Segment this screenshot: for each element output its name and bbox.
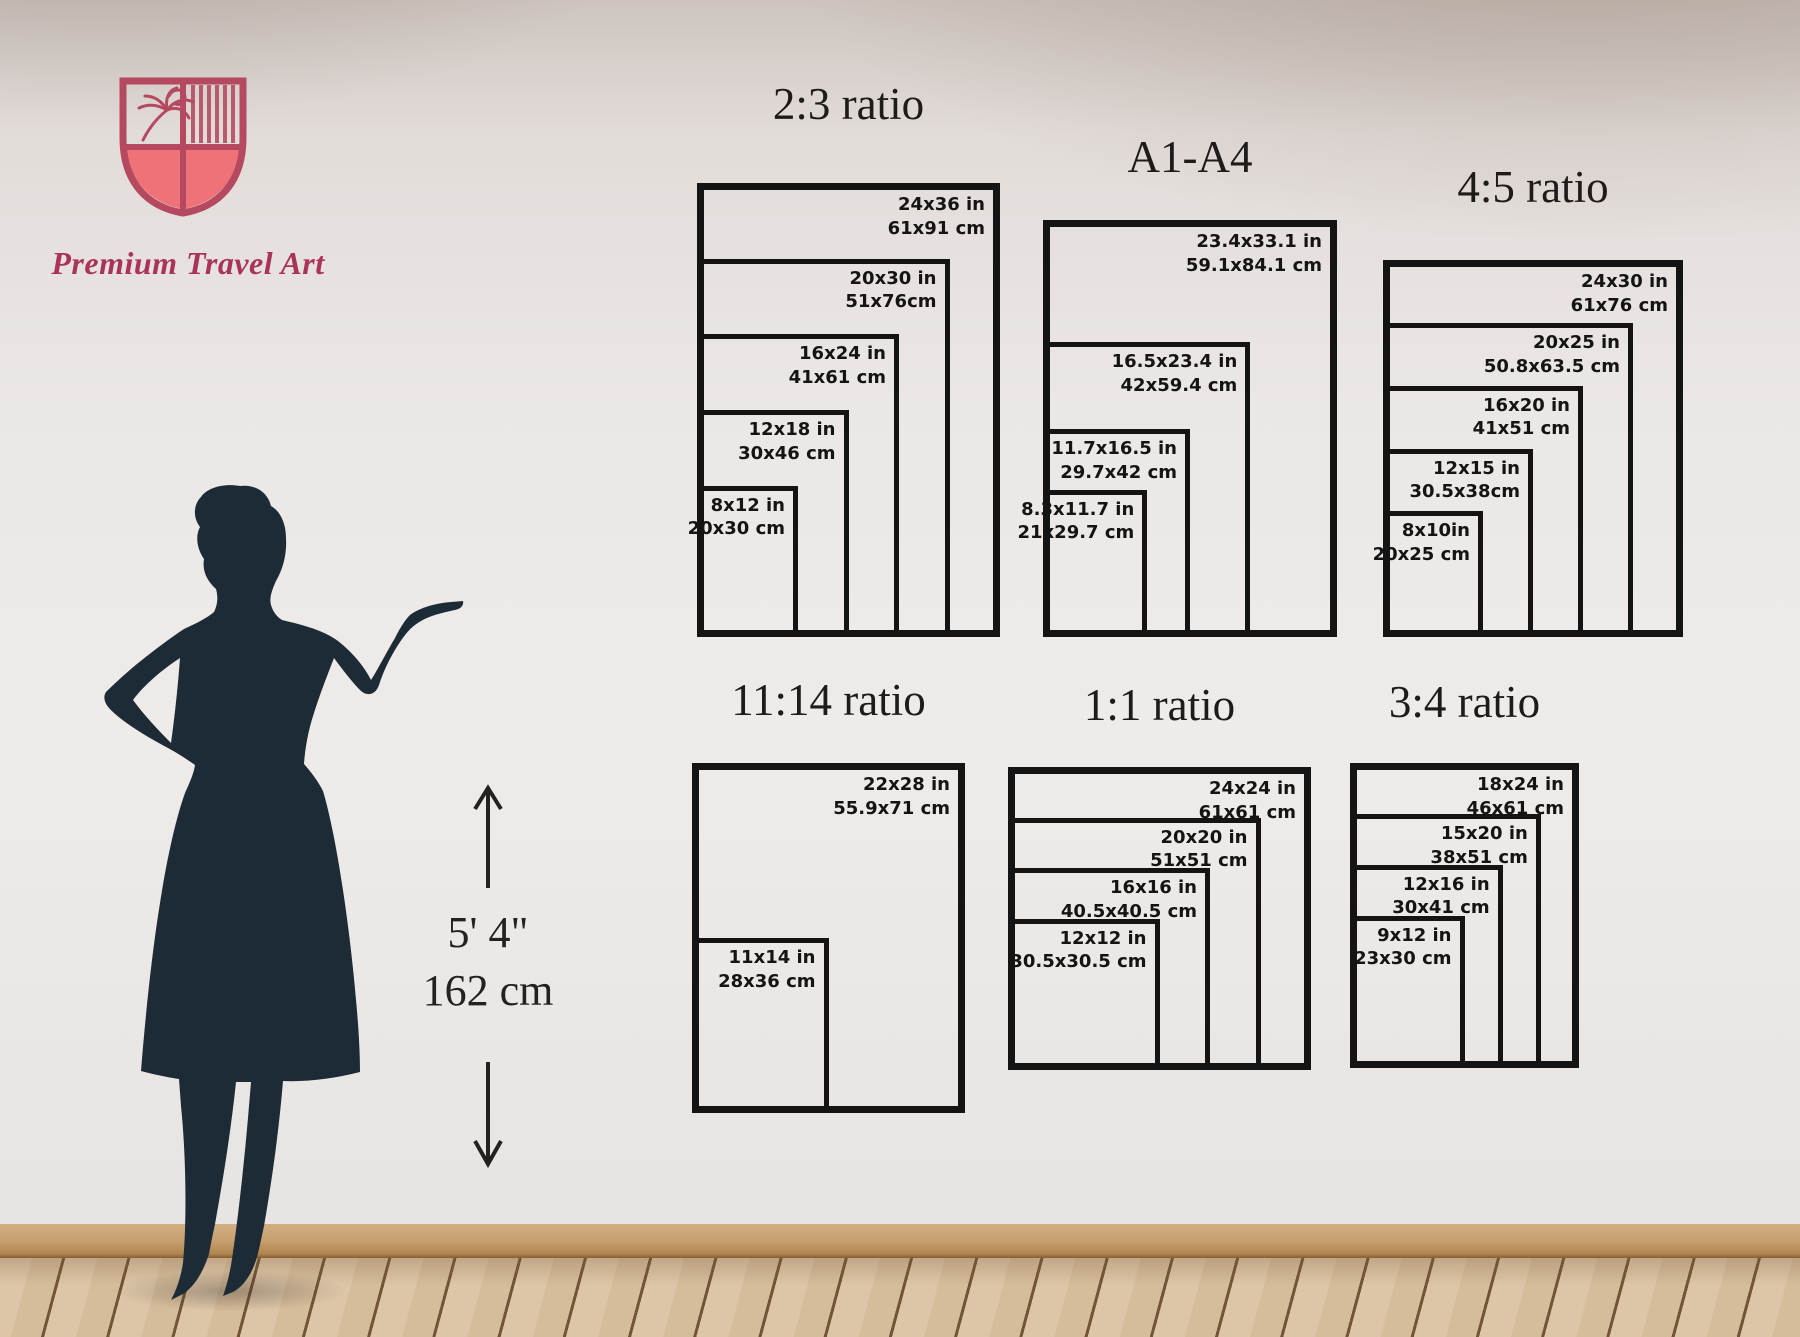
size-label: 8.3x11.7 in21x29.7 cm xyxy=(1018,498,1135,546)
size-chart-1-1: 24x24 in61x61 cm20x20 in51x51 cm16x16 in… xyxy=(1008,767,1311,1070)
size-label: 23.4x33.1 in59.1x84.1 cm xyxy=(1186,230,1322,278)
size-label: 24x36 in61x91 cm xyxy=(888,193,985,241)
woman-silhouette xyxy=(60,470,480,1310)
chart-title-2-3: 2:3 ratio xyxy=(697,80,1000,130)
size-rect-11x14in: 11x14 in28x36 cm xyxy=(692,938,829,1113)
size-chart-2-3: 24x36 in61x91 cm20x30 in51x76cm16x24 in4… xyxy=(697,183,1000,637)
size-label: 9x12 in23x30 cm xyxy=(1354,924,1451,972)
size-label: 22x28 in55.9x71 cm xyxy=(833,773,950,821)
size-label: 12x18 in30x46 cm xyxy=(738,418,835,466)
size-label: 11x14 in28x36 cm xyxy=(718,946,815,994)
chart-title-a1-a4: A1-A4 xyxy=(1043,133,1337,183)
size-label: 16x24 in41x61 cm xyxy=(789,342,886,390)
brand-name: Premium Travel Art xyxy=(30,244,346,282)
up-arrow-icon xyxy=(475,788,501,888)
chart-title-1-1: 1:1 ratio xyxy=(1008,681,1311,731)
chart-title-4-5: 4:5 ratio xyxy=(1383,163,1683,213)
size-rect-12x12in: 12x12 in30.5x30.5 cm xyxy=(1008,919,1160,1071)
size-label: 12x15 in30.5x38cm xyxy=(1410,457,1521,505)
size-label: 15x20 in38x51 cm xyxy=(1430,822,1527,870)
size-label: 11.7x16.5 in29.7x42 cm xyxy=(1051,437,1177,485)
size-rect-9x12in: 9x12 in23x30 cm xyxy=(1350,916,1465,1069)
size-label: 8x12 in20x30 cm xyxy=(688,494,785,542)
size-label: 20x30 in51x76cm xyxy=(845,267,936,315)
stripes-quadrant xyxy=(193,85,233,143)
size-chart-3-4: 18x24 in46x61 cm15x20 in38x51 cm12x16 in… xyxy=(1350,763,1579,1068)
shield-palm-logo-icon xyxy=(113,76,253,218)
size-label: 20x25 in50.8x63.5 cm xyxy=(1484,331,1620,379)
size-rect-8x10in: 8x10in20x25 cm xyxy=(1383,511,1483,637)
size-chart-11-14: 22x28 in55.9x71 cm11x14 in28x36 cm xyxy=(692,763,965,1113)
size-label: 8x10in20x25 cm xyxy=(1373,519,1470,567)
chart-title-11-14: 11:14 ratio xyxy=(692,676,965,726)
size-guide-scene: Premium Travel Art 5' 4" 162 cm 2:3 rati… xyxy=(0,0,1800,1337)
size-label: 12x12 in30.5x30.5 cm xyxy=(1010,927,1146,975)
down-arrow-icon xyxy=(475,1062,501,1164)
size-rect-8x12in: 8x12 in20x30 cm xyxy=(697,486,798,637)
size-label: 20x20 in51x51 cm xyxy=(1150,826,1247,874)
size-label: 16.5x23.4 in42x59.4 cm xyxy=(1112,350,1238,398)
size-chart-a1-a4: 23.4x33.1 in59.1x84.1 cm16.5x23.4 in42x5… xyxy=(1043,220,1337,637)
size-label: 24x30 in61x76 cm xyxy=(1571,270,1668,318)
height-imperial-label: 5' 4" xyxy=(400,908,576,959)
size-label: 16x16 in40.5x40.5 cm xyxy=(1061,876,1197,924)
size-label: 12x16 in30x41 cm xyxy=(1392,873,1489,921)
size-label: 16x20 in41x51 cm xyxy=(1473,394,1570,442)
chart-title-3-4: 3:4 ratio xyxy=(1350,678,1579,728)
size-rect-8.3x11.7in: 8.3x11.7 in21x29.7 cm xyxy=(1043,490,1147,637)
height-metric-label: 162 cm xyxy=(392,966,584,1017)
size-chart-4-5: 24x30 in61x76 cm20x25 in50.8x63.5 cm16x2… xyxy=(1383,260,1683,637)
